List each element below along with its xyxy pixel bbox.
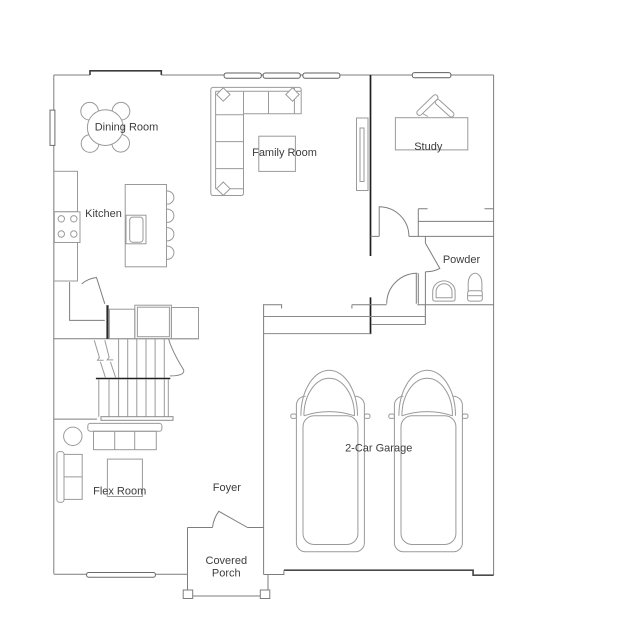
svg-text:Porch: Porch [212,568,241,580]
svg-text:Study: Study [414,141,443,153]
svg-text:Foyer: Foyer [213,482,241,494]
svg-text:Powder: Powder [443,254,481,266]
svg-text:2-Car Garage: 2-Car Garage [345,442,412,454]
svg-text:Flex Room: Flex Room [93,485,146,497]
svg-text:Covered: Covered [206,555,248,567]
svg-text:Dining Room: Dining Room [95,121,159,133]
svg-text:Kitchen: Kitchen [85,208,122,220]
svg-text:Family Room: Family Room [252,147,317,159]
